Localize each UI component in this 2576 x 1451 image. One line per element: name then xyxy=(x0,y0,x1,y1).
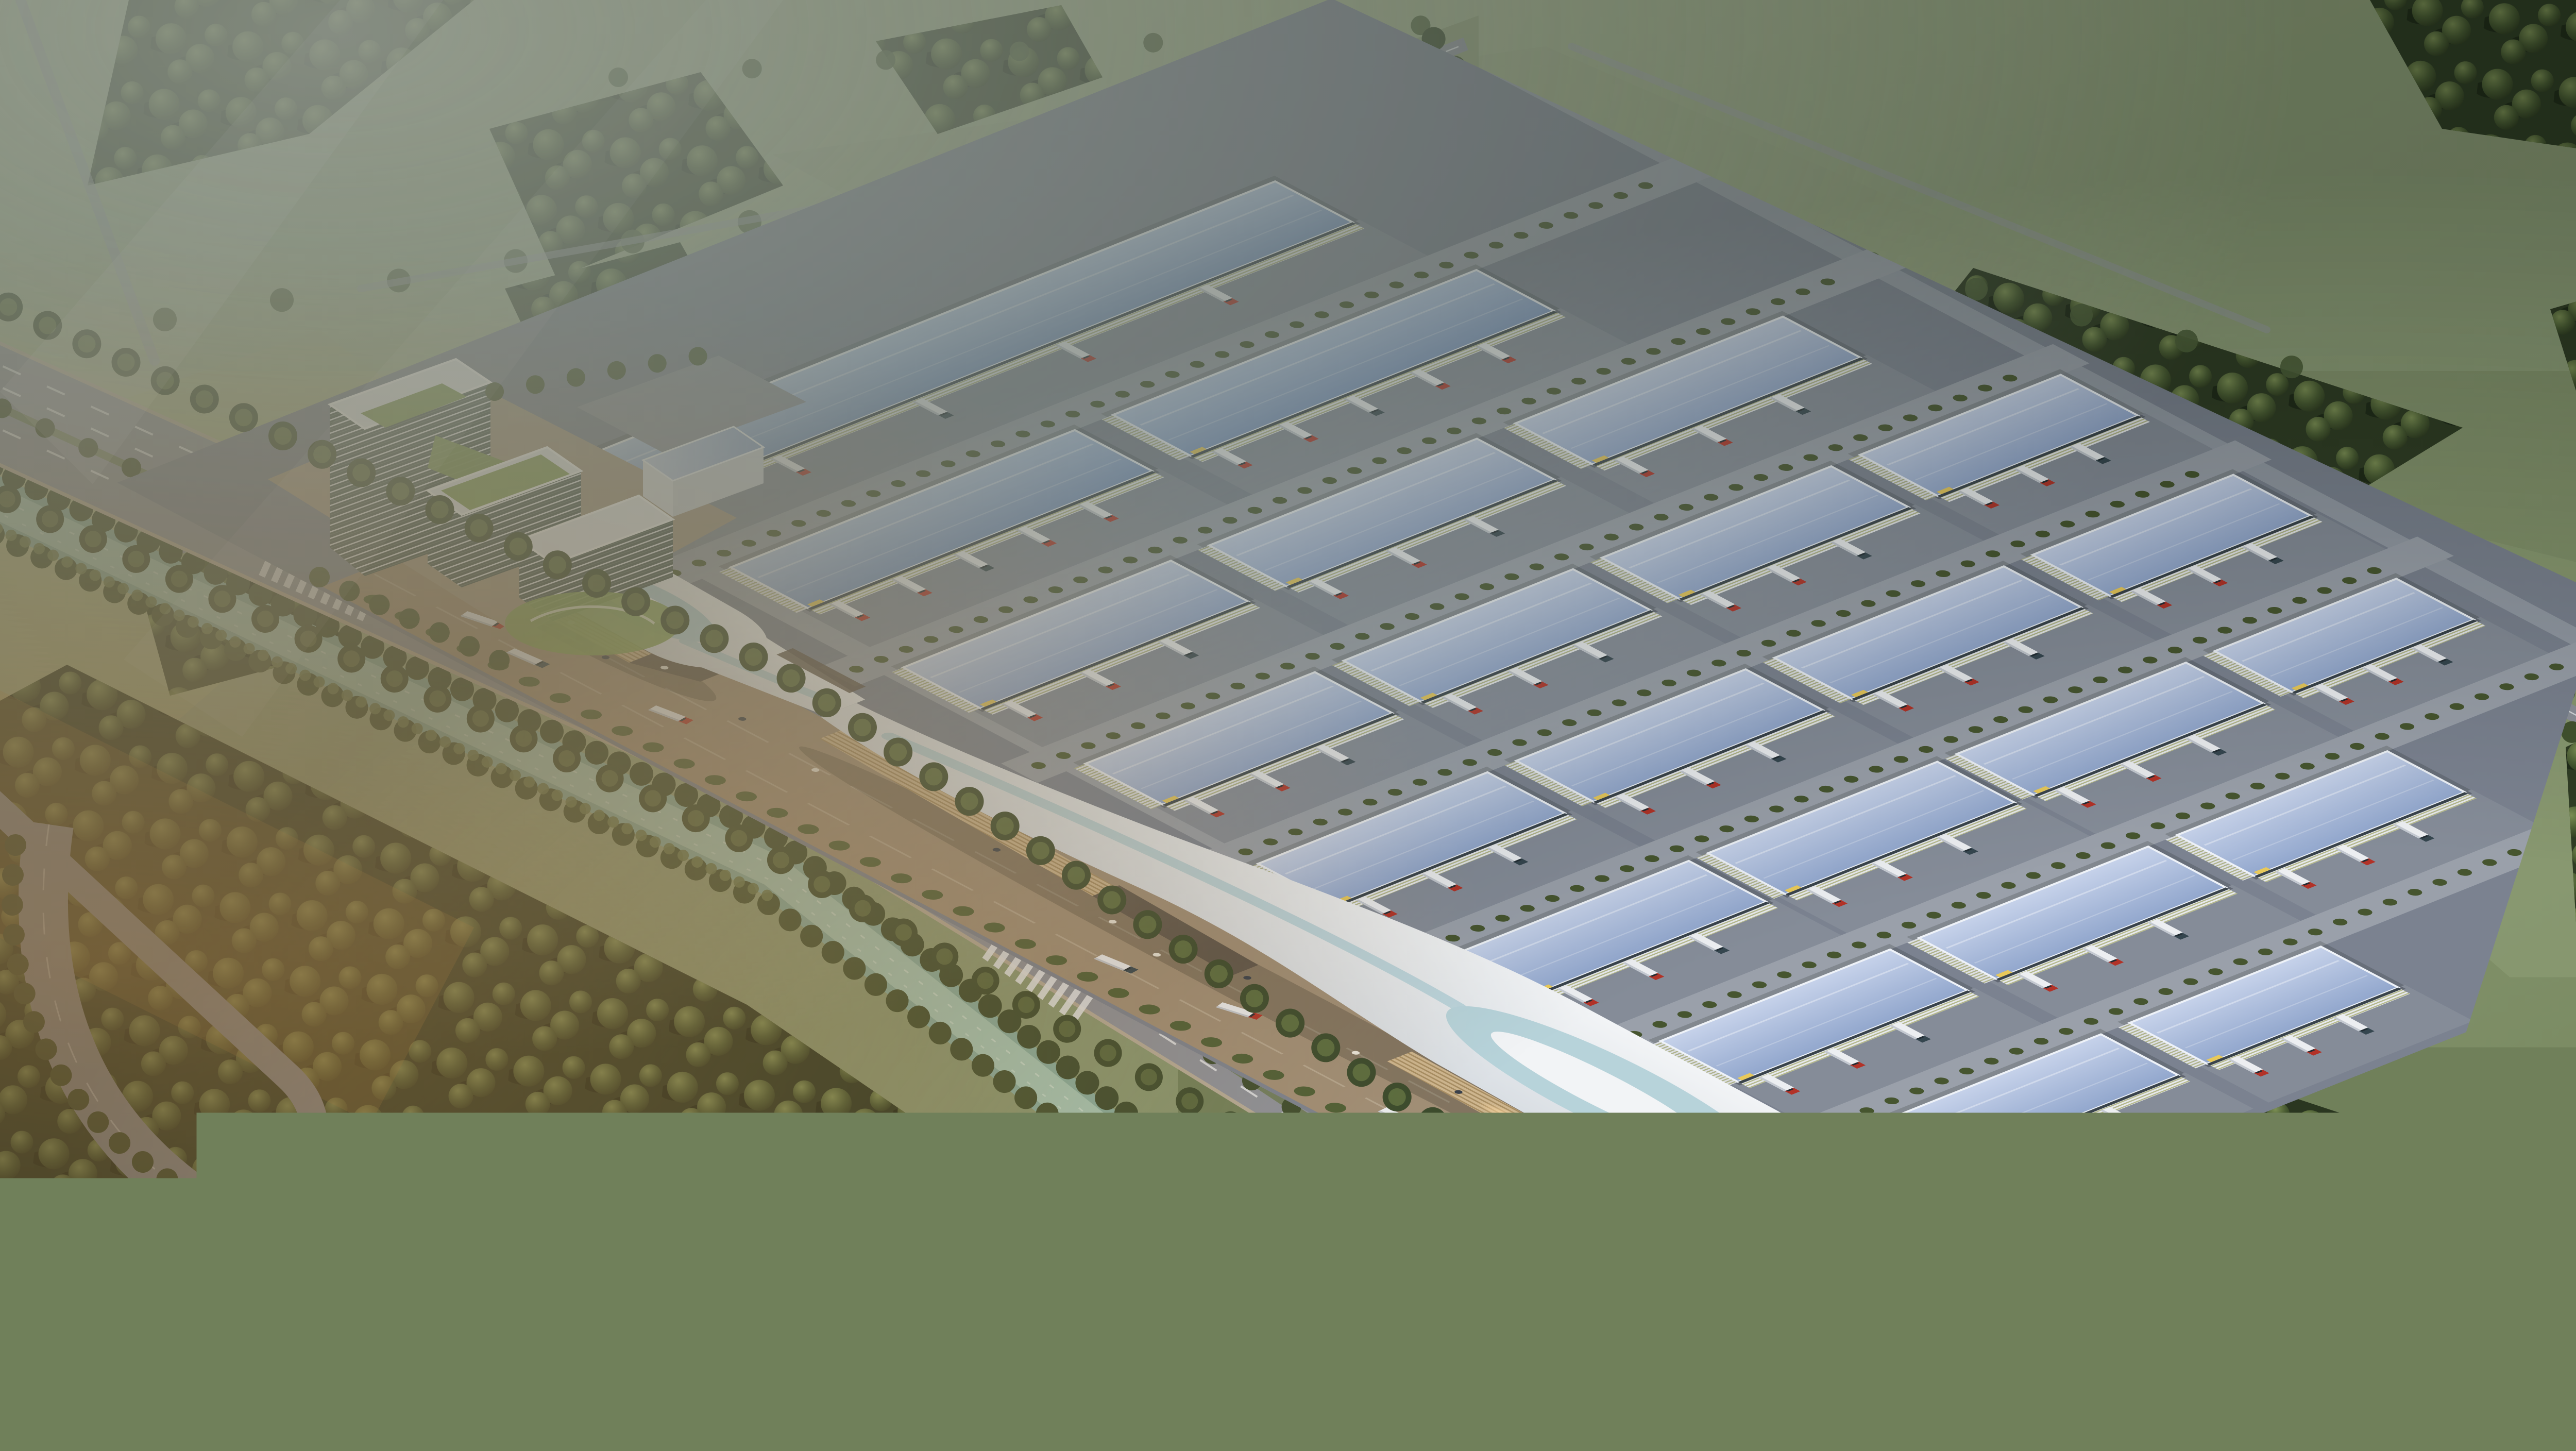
vignette xyxy=(0,0,2576,1451)
atmosphere xyxy=(0,0,2576,1451)
rendering-canvas xyxy=(0,0,2576,1451)
aerial-scene xyxy=(0,0,2576,1451)
